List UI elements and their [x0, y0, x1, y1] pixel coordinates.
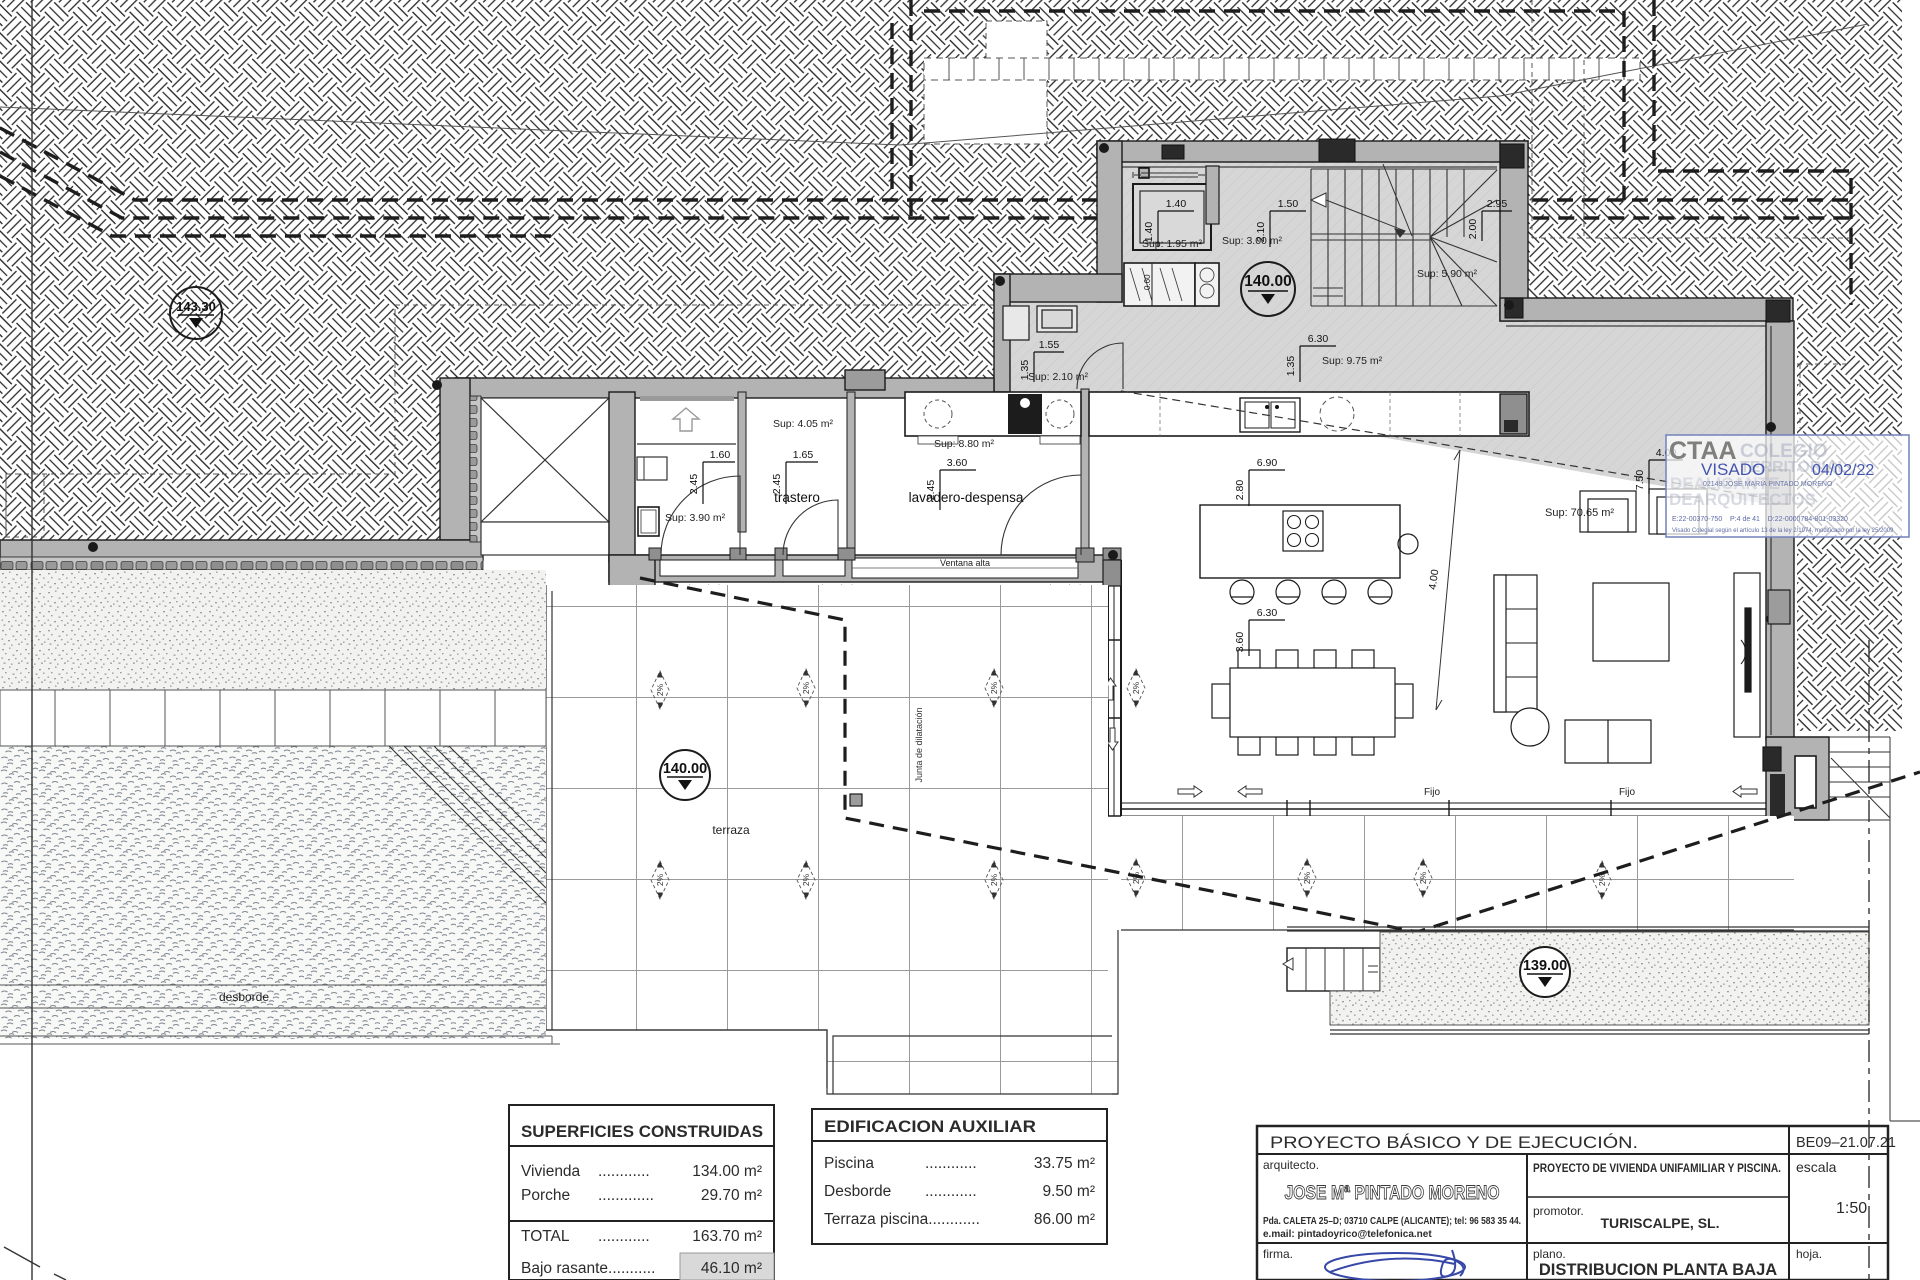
- svg-text:............: ............: [598, 1228, 650, 1245]
- svg-text:firma.: firma.: [1263, 1247, 1293, 1261]
- svg-text:9.50 m²: 9.50 m²: [1042, 1183, 1095, 1200]
- svg-text:1.50: 1.50: [1278, 198, 1299, 210]
- svg-text:1.65: 1.65: [793, 449, 814, 461]
- svg-text:1:50: 1:50: [1836, 1200, 1867, 1217]
- svg-text:143.30: 143.30: [176, 299, 216, 314]
- svg-text:1.40: 1.40: [1143, 222, 1155, 243]
- svg-text:Sup: 5.90 m²: Sup: 5.90 m²: [1417, 268, 1478, 280]
- svg-text:Sup: 3.90 m²: Sup: 3.90 m²: [665, 512, 726, 524]
- svg-text:29.70 m²: 29.70 m²: [701, 1187, 762, 1204]
- svg-text:DEALICANTE: DEALICANTE: [1670, 474, 1780, 493]
- svg-text:EDIFICACION AUXILIAR: EDIFICACION AUXILIAR: [824, 1117, 1036, 1136]
- svg-text:Desborde: Desborde: [824, 1183, 891, 1200]
- svg-text:1.40: 1.40: [1166, 198, 1187, 210]
- svg-text:2.45: 2.45: [688, 474, 700, 495]
- svg-text:04/02/22: 04/02/22: [1812, 462, 1874, 479]
- svg-text:e.mail: pintadoyrico@telefonic: e.mail: pintadoyrico@telefonica.net: [1263, 1229, 1432, 1240]
- svg-text:promotor.: promotor.: [1533, 1204, 1584, 1218]
- svg-text:86.00 m²: 86.00 m²: [1034, 1211, 1095, 1228]
- svg-text:E:22-00370-750 P:4 de 41: E:22-00370-750 P:4 de 41 D:22-0000784-80…: [1672, 516, 1848, 523]
- svg-text:1.35: 1.35: [1285, 356, 1297, 377]
- svg-text:134.00 m²: 134.00 m²: [692, 1163, 762, 1180]
- svg-text:2%: 2%: [655, 873, 665, 886]
- svg-text:Sup: 4.05 m²: Sup: 4.05 m²: [773, 418, 834, 430]
- svg-text:Fijo: Fijo: [1424, 787, 1441, 798]
- svg-text:Sup: 2.10 m²: Sup: 2.10 m²: [1028, 371, 1089, 383]
- svg-text:.............: .............: [598, 1187, 654, 1204]
- svg-text:1.55: 1.55: [1039, 339, 1060, 351]
- svg-text:2%: 2%: [989, 873, 999, 886]
- svg-text:Pda. CALETA 25–D; 03710 CALPE: Pda. CALETA 25–D; 03710 CALPE (ALICANTE)…: [1263, 1216, 1521, 1227]
- svg-text:PROYECTO BÁSICO Y DE EJECU: PROYECTO BÁSICO Y DE EJECUCIÓN.: [1270, 1133, 1638, 1152]
- svg-text:Porche: Porche: [521, 1187, 570, 1204]
- svg-text:escala: escala: [1796, 1159, 1837, 1175]
- svg-text:............: ............: [925, 1155, 977, 1172]
- svg-text:TOTAL: TOTAL: [521, 1228, 570, 1245]
- svg-text:2.00: 2.00: [1467, 219, 1479, 240]
- svg-text:JOSE Mª PINTADO MORENO: JOSE Mª PINTADO MORENO: [1285, 1183, 1500, 1204]
- svg-text:SUPERFICIES CONSTRUIDAS: SUPERFICIES CONSTRUIDAS: [521, 1122, 763, 1141]
- svg-text:2%: 2%: [1302, 871, 1312, 884]
- svg-text:2.45: 2.45: [771, 474, 783, 495]
- svg-text:arquitecto.: arquitecto.: [1263, 1158, 1319, 1172]
- svg-text:2.10: 2.10: [1255, 222, 1267, 243]
- svg-text:2%: 2%: [1418, 871, 1428, 884]
- svg-text:2.80: 2.80: [1234, 480, 1246, 501]
- svg-text:DISTRIBUCION PLANTA BAJA: DISTRIBUCION PLANTA BAJA: [1539, 1261, 1777, 1279]
- svg-text:2.45: 2.45: [925, 480, 937, 501]
- svg-text:33.75 m²: 33.75 m²: [1034, 1155, 1095, 1172]
- svg-text:Bajo rasante...........: Bajo rasante...........: [521, 1260, 655, 1277]
- svg-text:163.70 m²: 163.70 m²: [692, 1228, 762, 1245]
- svg-text:0.60: 0.60: [1143, 274, 1152, 290]
- svg-text:TURISCALPE, SL.: TURISCALPE, SL.: [1600, 1215, 1719, 1231]
- svg-text:plano.: plano.: [1533, 1247, 1566, 1261]
- svg-text:2.95: 2.95: [1487, 198, 1508, 210]
- svg-text:2%: 2%: [1131, 681, 1141, 694]
- svg-text:desborde: desborde: [219, 990, 269, 1004]
- svg-text:3.60: 3.60: [1234, 632, 1246, 653]
- svg-text:PROYECTO DE VIVIENDA UNIFAMILI: PROYECTO DE VIVIENDA UNIFAMILIAR Y PISCI…: [1533, 1163, 1781, 1175]
- svg-text:2%: 2%: [801, 681, 811, 694]
- svg-text:Sup: 70.65 m²: Sup: 70.65 m²: [1545, 507, 1614, 519]
- svg-text:hoja.: hoja.: [1796, 1247, 1822, 1261]
- svg-text:Visado Colegial según el artíc: Visado Colegial según el artículo 13 de …: [1672, 528, 1894, 534]
- svg-text:............: ............: [598, 1163, 650, 1180]
- svg-text:140.00: 140.00: [663, 761, 707, 777]
- svg-text:6.90: 6.90: [1257, 457, 1278, 469]
- svg-text:Sup: 3.00 m²: Sup: 3.00 m²: [1222, 235, 1283, 247]
- svg-text:2%: 2%: [655, 683, 665, 696]
- svg-text:Vivienda: Vivienda: [521, 1163, 581, 1180]
- svg-text:Ventana alta: Ventana alta: [940, 558, 990, 568]
- svg-text:Fijo: Fijo: [1619, 787, 1636, 798]
- svg-text:139.00: 139.00: [1523, 958, 1567, 974]
- svg-text:3.60: 3.60: [947, 457, 968, 469]
- svg-text:2%: 2%: [801, 873, 811, 886]
- svg-text:terraza: terraza: [712, 823, 750, 837]
- svg-text:1.60: 1.60: [710, 449, 731, 461]
- svg-text:Junta de dilatación: Junta de dilatación: [914, 707, 924, 782]
- svg-text:6.30: 6.30: [1257, 607, 1278, 619]
- svg-text:Sup: 9.75 m²: Sup: 9.75 m²: [1322, 355, 1383, 367]
- svg-text:Sup: 8.80 m²: Sup: 8.80 m²: [934, 438, 995, 450]
- svg-text:140.00: 140.00: [1244, 273, 1291, 290]
- svg-text:Piscina: Piscina: [824, 1155, 874, 1172]
- svg-text:2%: 2%: [989, 681, 999, 694]
- svg-text:7.50: 7.50: [1634, 470, 1646, 491]
- svg-text:1.35: 1.35: [1019, 360, 1031, 381]
- svg-text:Terraza piscina............: Terraza piscina............: [824, 1211, 980, 1228]
- svg-text:BE09–21.07.21: BE09–21.07.21: [1796, 1135, 1896, 1151]
- svg-text:6.30: 6.30: [1308, 333, 1329, 345]
- svg-text:46.10 m²: 46.10 m²: [701, 1260, 762, 1277]
- svg-text:............: ............: [925, 1183, 977, 1200]
